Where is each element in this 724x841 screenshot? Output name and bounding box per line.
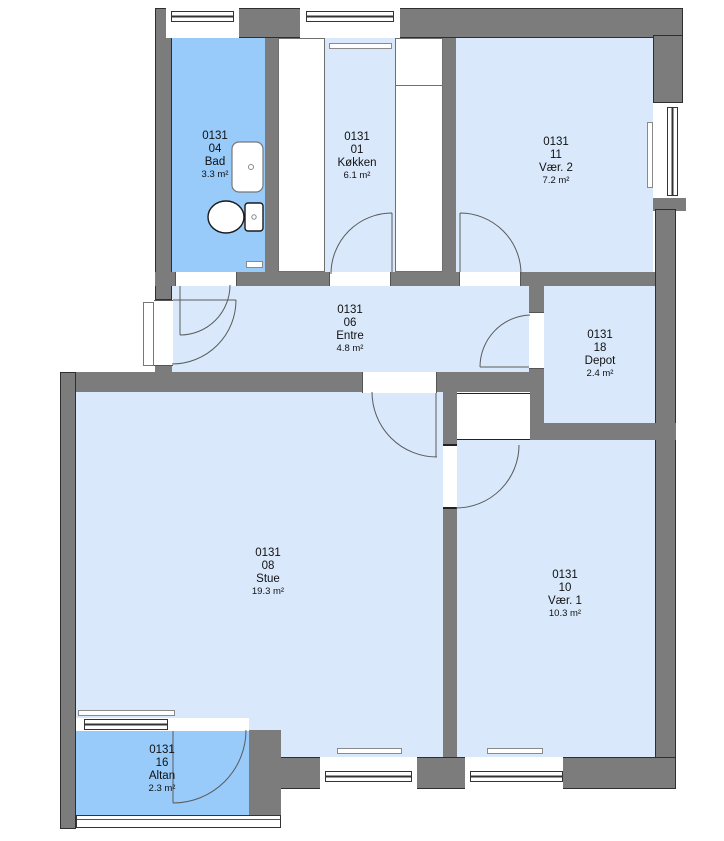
window-glazing-vaer2-right [667,107,678,196]
room-name: Køkken [307,157,407,170]
door-opening-entry [154,300,173,366]
window-glazing-kokken-top [306,11,394,22]
room-label-altan: 0131 16 Altan 2.3 m² [112,744,212,794]
room-name: Vær. 1 [515,595,615,608]
passage-opening-entre-stue [362,372,437,393]
window-glazing-bad-top [171,11,234,22]
room-area: 10.3 m² [515,608,615,619]
room-area: 7.2 m² [506,175,606,186]
wall-right [655,209,676,789]
room-area: 2.3 m² [112,783,212,794]
door-opening-vaer1 [443,444,457,509]
kitchen-shelf [329,43,392,49]
room-number: 10 [515,582,615,595]
room-area: 6.1 m² [307,170,407,181]
room-name: Stue [218,573,318,586]
bathroom-floor-item [246,261,263,268]
radiator-vaer2 [647,122,653,188]
door-opening-depot [529,312,544,369]
room-name: Vær. 2 [506,162,606,175]
room-label-vaer2: 0131 11 Vær. 2 7.2 m² [506,136,606,186]
room-number: 06 [300,317,400,330]
window-glazing-stue-bottom [325,771,412,782]
room-label-entre: 0131 06 Entre 4.8 m² [300,304,400,354]
room-number: 01 [307,144,407,157]
window-glazing-altan [84,719,168,730]
room-area: 4.8 m² [300,343,400,354]
room-id: 0131 [515,569,615,582]
room-number: 18 [550,342,650,355]
room-id: 0131 [165,130,265,143]
door-opening-bad [175,272,237,286]
room-label-vaer1: 0131 10 Vær. 1 10.3 m² [515,569,615,619]
room-label-kokken: 0131 01 Køkken 6.1 m² [307,131,407,181]
door-opening-vaer2 [459,272,521,286]
altan-railing [76,815,281,828]
room-id: 0131 [550,329,650,342]
wall-entre-bottom [60,372,543,392]
room-id: 0131 [112,744,212,757]
entry-door-frame-exterior [143,302,154,366]
radiator-stue [337,748,402,754]
room-name: Entre [300,330,400,343]
room-area: 2.4 m² [550,368,650,379]
kitchen-counter-divider [396,85,442,86]
room-id: 0131 [307,131,407,144]
room-name: Altan [112,770,212,783]
room-number: 11 [506,149,606,162]
radiator-stue-altan [78,710,175,716]
window-glazing-vaer1-bottom [470,771,563,782]
room-area: 19.3 m² [218,586,318,597]
wall-altan-right [249,730,281,816]
room-id: 0131 [300,304,400,317]
floor-plan: 0131 04 Bad 3.3 m² 0131 01 Køkken 6.1 m²… [0,0,724,841]
room-label-bad: 0131 04 Bad 3.3 m² [165,130,265,180]
wall-depot-bottom [540,423,676,440]
room-id: 0131 [506,136,606,149]
room-label-stue: 0131 08 Stue 19.3 m² [218,547,318,597]
wall-bad-kokken [265,38,278,286]
room-name: Depot [550,355,650,368]
room-id: 0131 [218,547,318,560]
room-label-depot: 0131 18 Depot 2.4 m² [550,329,650,379]
room-number: 04 [165,143,265,156]
radiator-vaer1 [487,748,543,754]
wall-right-upper [653,35,683,103]
room-area: 3.3 m² [165,169,265,180]
room-number: 08 [218,560,318,573]
wall-kokken-vaer2 [443,38,456,286]
wall-left [60,372,76,829]
room-number: 16 [112,757,212,770]
closet-vaer1 [455,393,532,440]
room-name: Bad [165,156,265,169]
door-opening-kokken [329,272,391,286]
